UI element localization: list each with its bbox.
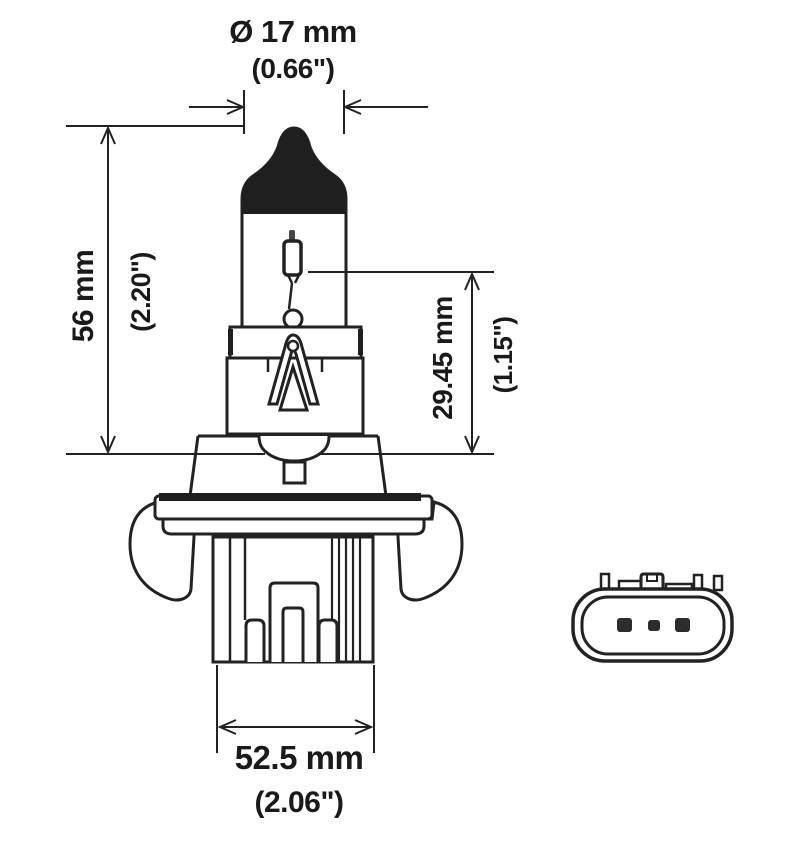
bulb-side-view xyxy=(130,128,462,662)
neck-key-square xyxy=(284,462,305,483)
neck-dome xyxy=(259,436,329,461)
collar-tick-right xyxy=(358,329,363,355)
pin-1 xyxy=(617,618,632,632)
drawing-canvas: Ø 17 mm (0.66") 56 mm (2.20") 29.45 mm (… xyxy=(0,0,800,843)
diameter-imperial-label: (0.66") xyxy=(252,53,335,84)
housing-right-slot xyxy=(319,620,337,662)
collar-tick-left xyxy=(228,329,233,355)
connector-face-view xyxy=(573,574,732,661)
dimension-diameter xyxy=(189,90,428,134)
height-metric-label: 56 mm xyxy=(67,250,100,343)
housing-left-slot xyxy=(246,620,264,662)
base-width-metric-label: 52.5 mm xyxy=(235,739,364,776)
lcl-imperial-label: (1.15") xyxy=(488,317,518,394)
connector-housing xyxy=(213,535,373,662)
connector-pins xyxy=(617,618,690,632)
flange-lip xyxy=(163,519,424,534)
base-width-imperial-label: (2.06") xyxy=(254,786,343,819)
technical-drawing: Ø 17 mm (0.66") 56 mm (2.20") 29.45 mm (… xyxy=(0,0,800,843)
pin-2 xyxy=(648,620,660,631)
lcl-metric-label: 29.45 mm xyxy=(427,296,458,420)
pin-3 xyxy=(675,618,690,632)
height-imperial-label: (2.20") xyxy=(126,252,156,332)
flange-top-bar xyxy=(159,493,421,501)
housing-inner-slot xyxy=(283,608,303,662)
diameter-metric-label: Ø 17 mm xyxy=(229,14,356,49)
